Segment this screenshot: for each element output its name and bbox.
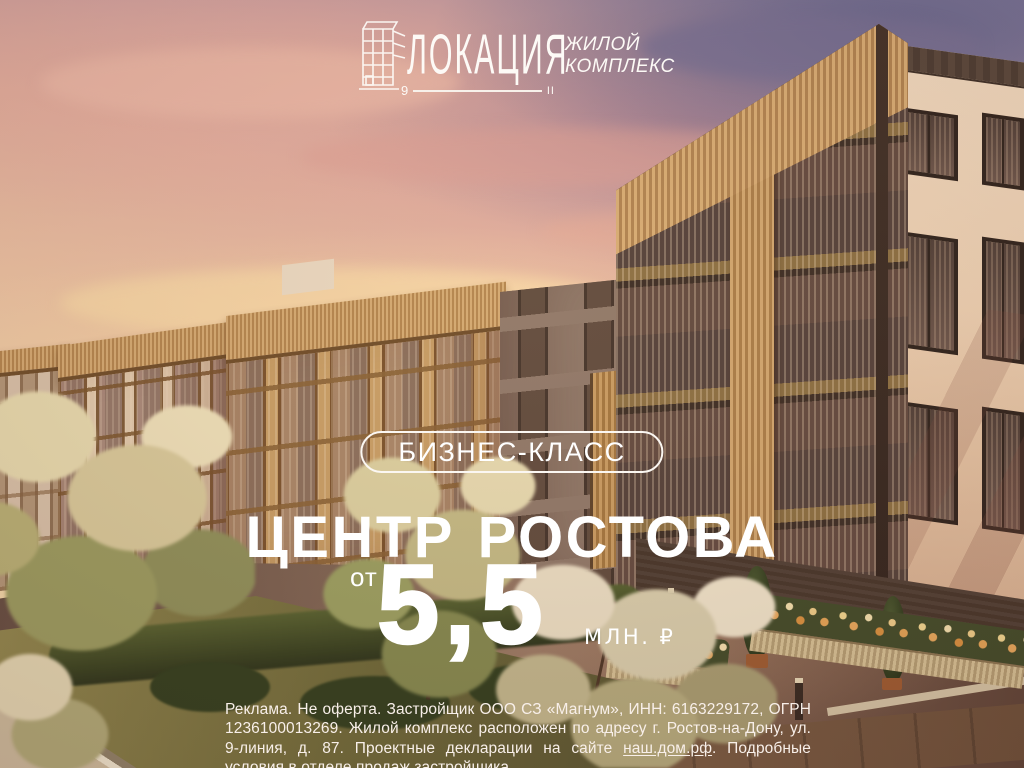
logo-underline-right: II — [547, 85, 555, 97]
logo-underline: 9 II — [401, 83, 555, 98]
ad-poster: ЛОКАЦИЯ ЖИЛОЙ КОМПЛЕКС 9 II БИЗНЕС-КЛАСС… — [0, 0, 1024, 768]
logo: ЛОКАЦИЯ ЖИЛОЙ КОМПЛЕКС 9 II — [353, 13, 673, 99]
logo-subtitle-line2: КОМПЛЕКС — [565, 56, 675, 77]
disclaimer: Реклама. Не оферта. Застройщик ООО СЗ «М… — [225, 700, 811, 768]
logo-wordmark: ЛОКАЦИЯ — [407, 21, 569, 87]
logo-subtitle-line1: ЖИЛОЙ — [565, 34, 640, 55]
disclaimer-link[interactable]: наш.дом.рф — [623, 740, 712, 757]
price-unit: млн. ₽ — [584, 625, 675, 649]
logo-underline-left: 9 — [401, 83, 408, 98]
logo-subtitle: ЖИЛОЙ КОМПЛЕКС — [565, 34, 675, 78]
price-value: 5,5 — [377, 549, 548, 661]
business-class-badge: БИЗНЕС-КЛАСС — [360, 431, 663, 473]
price-prefix: от — [350, 562, 378, 593]
overlay: ЛОКАЦИЯ ЖИЛОЙ КОМПЛЕКС 9 II БИЗНЕС-КЛАСС… — [0, 0, 1024, 768]
logo-underline-rule — [413, 90, 542, 92]
